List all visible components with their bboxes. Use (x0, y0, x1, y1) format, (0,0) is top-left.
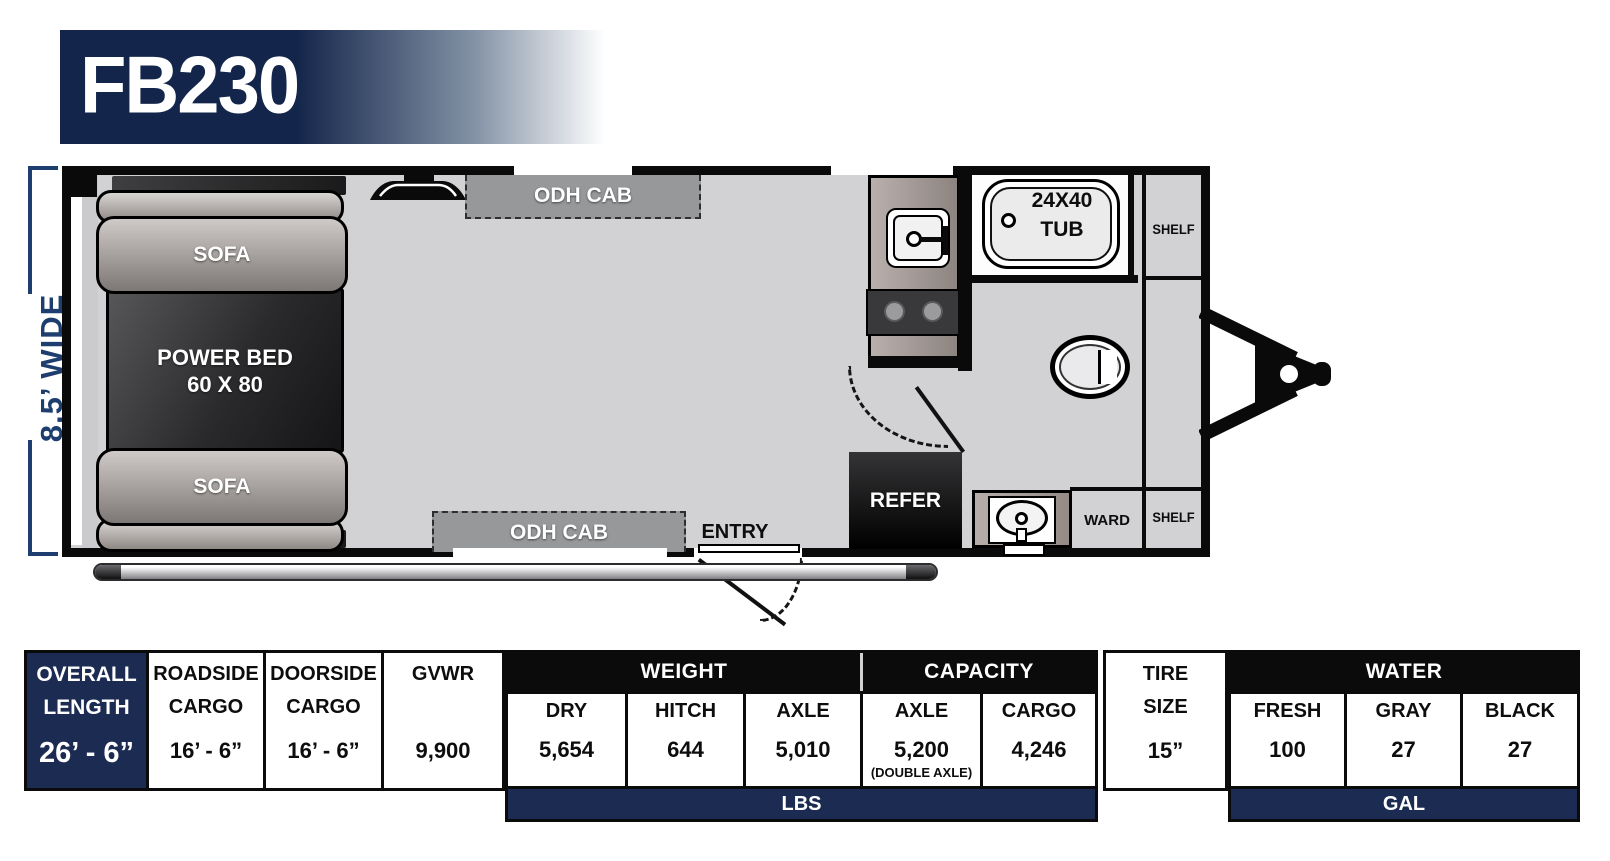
tub-label: 24X40 TUB (1010, 186, 1114, 244)
overhead-cabinet-top: ODH CAB (465, 175, 701, 219)
tub-wall-bottom (970, 275, 1138, 283)
kitchen-faucet-base (943, 226, 948, 255)
power-bed-label-line1: POWER BED (157, 344, 293, 371)
cargo-label: CARGO (1002, 700, 1076, 723)
spec-section-dimensions: OVERALL LENGTH 26’ - 6” ROADSIDE CARGO 1… (24, 650, 505, 791)
cooktop (866, 289, 961, 336)
sofa-top: SOFA (96, 216, 348, 294)
black-label: BLACK (1485, 700, 1555, 723)
shelf-bottom-label: SHELF (1148, 509, 1199, 525)
overall-value: 26’ - 6” (39, 737, 134, 770)
tub-text-label: TUB (1010, 215, 1114, 244)
spec-cell-fresh-water: FRESH 100 (1231, 694, 1344, 786)
vanity-row-divider (1070, 487, 1201, 491)
sofa-bottom: SOFA (96, 448, 348, 526)
vanity-pedestal (1003, 544, 1045, 556)
shelf-column-wall (1142, 175, 1146, 548)
vanity-faucet-stem (1016, 528, 1027, 542)
model-banner: FB230 (60, 30, 622, 144)
doorside-value: 16’ - 6” (287, 738, 359, 764)
fresh-label: FRESH (1254, 700, 1322, 723)
front-corner-notch (71, 175, 97, 197)
refrigerator: REFER (849, 452, 962, 549)
toilet (1050, 335, 1130, 399)
spec-cell-black-water: BLACK 27 (1463, 694, 1577, 786)
spec-cell-cargo-capacity: CARGO 4,246 (983, 694, 1095, 786)
hitch-label: HITCH (655, 700, 716, 723)
dry-value: 5,654 (539, 737, 594, 763)
dimension-line-top (28, 166, 32, 294)
bed-slide-gap (71, 179, 82, 545)
spec-section-water: WATER FRESH 100 GRAY 27 BLACK 27 GAL (1228, 650, 1580, 822)
cargo-value: 4,246 (1011, 737, 1066, 763)
water-unit-bar: GAL (1231, 789, 1577, 819)
tub-wall-right (1128, 175, 1134, 277)
overhead-cabinet-bottom-label: ODH CAB (510, 521, 608, 545)
overhead-cabinet-bottom: ODH CAB (432, 511, 686, 552)
water-value-row: FRESH 100 GRAY 27 BLACK 27 (1231, 694, 1577, 786)
model-name: FB230 (60, 27, 622, 146)
axle-capacity-label: AXLE (895, 700, 948, 723)
fb230-floorplan-sheet: FB230 8.5’ WIDE POWER BED 60 X 80 SOFA S… (0, 0, 1610, 861)
hitch-value: 644 (667, 737, 704, 763)
cooktop-burner-left (884, 301, 905, 322)
axle-weight-label: AXLE (776, 700, 829, 723)
spec-cell-dry-weight: DRY 5,654 (508, 694, 625, 786)
spec-cell-axle-weight: AXLE 5,010 (746, 694, 860, 786)
weight-capacity-value-row: DRY 5,654 HITCH 644 AXLE 5,010 AXLE 5,20… (508, 694, 1095, 786)
gray-value: 27 (1391, 737, 1415, 763)
doorside-label-line1: DOORSIDE (270, 663, 377, 686)
spec-cell-gray-water: GRAY 27 (1347, 694, 1460, 786)
spec-cell-tire-size: TIRE SIZE 15” (1106, 653, 1225, 788)
overall-label-line2: LENGTH (43, 696, 129, 719)
window-top-right (831, 166, 953, 175)
black-value: 27 (1508, 737, 1532, 763)
roadside-label-line1: ROADSIDE (153, 663, 259, 686)
roadside-value: 16’ - 6” (170, 738, 242, 764)
refrigerator-label: REFER (870, 489, 941, 513)
spec-cell-axle-capacity: AXLE 5,200 (DOUBLE AXLE) (863, 694, 980, 786)
capacity-header: CAPACITY (863, 653, 1095, 691)
roadside-label-line2: CARGO (169, 696, 243, 719)
vanity-faucet-icon (1015, 512, 1028, 525)
spec-section-tire: TIRE SIZE 15” (1103, 650, 1228, 791)
entry-label: ENTRY (690, 521, 780, 544)
axle-weight-value: 5,010 (775, 737, 830, 763)
cooktop-burner-right (922, 301, 943, 322)
shelf-top-divider (1142, 276, 1201, 280)
overhead-cabinet-top-label: ODH CAB (534, 184, 632, 208)
kitchen-bath-wall (958, 175, 972, 371)
tub-size-label: 24X40 (1010, 186, 1114, 215)
hitch-icon (1199, 300, 1333, 448)
power-bed-label-line2: 60 X 80 (187, 371, 263, 398)
weight-capacity-header-row: WEIGHT CAPACITY (508, 653, 1095, 691)
tv-icon (364, 174, 472, 202)
sofa-bottom-label: SOFA (193, 475, 250, 499)
tire-value: 15” (1148, 738, 1183, 764)
dry-label: DRY (546, 700, 587, 723)
dimension-cap-top (28, 166, 58, 170)
water-header: WATER (1231, 653, 1577, 691)
weight-unit-bar: LBS (508, 789, 1095, 819)
weight-header: WEIGHT (508, 653, 860, 691)
window-top-left (514, 166, 632, 175)
tire-label-line2: SIZE (1143, 696, 1187, 719)
shelf-top-label: SHELF (1148, 221, 1199, 237)
axle-capacity-value: 5,200 (894, 737, 949, 763)
spec-cell-doorside-cargo: DOORSIDE CARGO 16’ - 6” (266, 653, 381, 788)
doorside-label-line2: CARGO (286, 696, 360, 719)
entry-door (698, 544, 800, 553)
overall-label-line1: OVERALL (36, 663, 136, 686)
spec-section-weight-capacity: WEIGHT CAPACITY DRY 5,654 HITCH 644 AXLE… (505, 650, 1098, 822)
power-bed: POWER BED 60 X 80 (106, 288, 344, 453)
ward-label: WARD (1072, 512, 1142, 529)
awning-cap-right (906, 565, 936, 579)
gvwr-label: GVWR (412, 663, 474, 686)
spec-cell-gvwr: GVWR 9,900 (384, 653, 502, 788)
toilet-seat-edge (1098, 350, 1117, 384)
window-bottom (453, 548, 667, 557)
awning-cap-left (95, 565, 121, 579)
sofa-top-label: SOFA (193, 243, 250, 267)
tire-label-line1: TIRE (1143, 663, 1189, 686)
gray-label: GRAY (1376, 700, 1432, 723)
spec-cell-roadside-cargo: ROADSIDE CARGO 16’ - 6” (149, 653, 263, 788)
dimension-cap-bottom (28, 552, 58, 556)
fresh-value: 100 (1269, 737, 1306, 763)
dimension-line-bottom (28, 440, 32, 556)
awning-rail (93, 563, 938, 581)
spec-cell-hitch-weight: HITCH 644 (628, 694, 743, 786)
axle-capacity-note: (DOUBLE AXLE) (871, 765, 972, 780)
spec-cell-overall-length: OVERALL LENGTH 26’ - 6” (27, 653, 146, 788)
gvwr-value: 9,900 (415, 738, 470, 764)
